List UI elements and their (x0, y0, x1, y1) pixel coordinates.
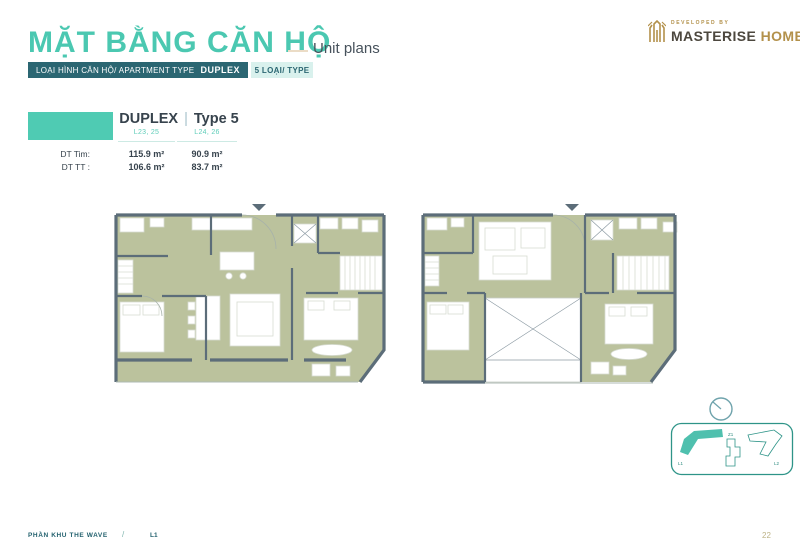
floor-plan-upper-level (413, 198, 713, 393)
building-l1-label: L1 (678, 461, 684, 466)
levels-column-1: L23, 25 (118, 129, 175, 136)
unit-type-name: DUPLEX (119, 111, 178, 127)
apartment-type-label: LOẠI HÌNH CĂN HỘ/ APARTMENT TYPE (36, 66, 194, 75)
unit-type-title: DUPLEX | Type 5 (118, 111, 240, 127)
building-z1-label: Z1 (728, 432, 734, 437)
building-l2-label: L2 (774, 461, 780, 466)
apartment-type-value: DUPLEX (200, 65, 240, 75)
entrance-arrow-icon (565, 204, 579, 211)
logo-brand-primary: MASTERISE (671, 28, 756, 44)
type-count-badge: 5 LOẠI/ TYPE (251, 62, 313, 78)
type-color-swatch (28, 112, 113, 140)
logo-brand-suffix: HOMES (761, 28, 800, 44)
logo-brand-name: MASTERISE HOMES (671, 28, 800, 44)
floor-plan-lower-level (106, 198, 406, 393)
area-tt-col1: 106.6 m² (118, 162, 175, 172)
entrance-arrow-icon (252, 204, 266, 211)
footer-zone-name: PHẦN KHU THE WAVE (28, 532, 108, 539)
masterise-emblem-icon (648, 20, 666, 44)
masterise-homes-logo: DEVELOPED BY MASTERISE HOMES (648, 20, 800, 44)
brochure-page: MẶT BẰNG CĂN HỘ Unit plans DEVELOPED BY … (0, 0, 800, 552)
area-tim-col2: 90.9 m² (177, 149, 237, 159)
footer-separator: / (122, 530, 124, 539)
unit-type-variant: Type 5 (194, 111, 239, 127)
logo-developed-by: DEVELOPED BY (671, 20, 800, 26)
area-label-tim: DT Tim: (28, 149, 90, 159)
apartment-type-bar: LOẠI HÌNH CĂN HỘ/ APARTMENT TYPE DUPLEX (28, 62, 248, 78)
area-tt-col2: 83.7 m² (177, 162, 237, 172)
unit-type-separator: | (184, 111, 188, 127)
levels-column-2: L24, 26 (177, 129, 237, 136)
subtitle-dash (288, 50, 308, 52)
page-number: 22 (762, 531, 771, 540)
area-label-tt: DT TT : (28, 162, 90, 172)
column-divider-2 (177, 141, 237, 142)
page-subtitle: Unit plans (313, 40, 380, 57)
footer-level: L1 (150, 532, 158, 539)
area-tim-col1: 115.9 m² (118, 149, 175, 159)
double-height-void (485, 298, 581, 382)
page-title: MẶT BẰNG CĂN HỘ (28, 26, 331, 60)
site-key-plan: L1 Z1 L2 (670, 422, 795, 477)
column-divider-1 (118, 141, 175, 142)
